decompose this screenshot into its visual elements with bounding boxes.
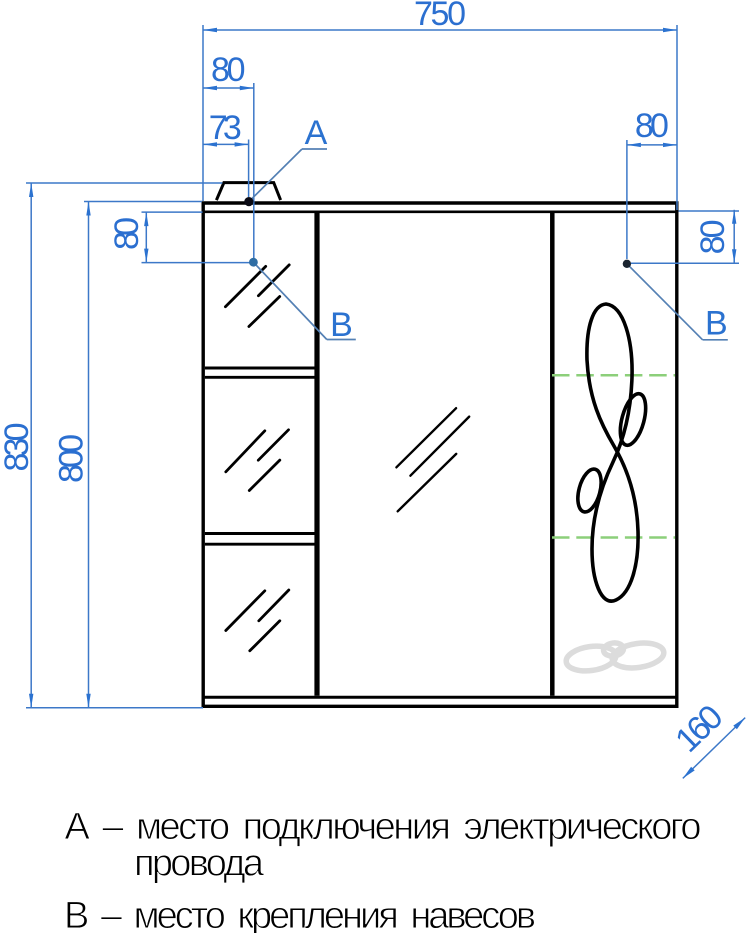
svg-text:830: 830 [0, 423, 36, 472]
svg-text:А: А [305, 114, 328, 152]
svg-text:73: 73 [209, 109, 242, 147]
svg-text:80: 80 [694, 219, 732, 254]
svg-text:В – место крепления навесов: В – место крепления навесов [64, 895, 536, 933]
svg-text:В: В [705, 305, 728, 343]
svg-text:В: В [330, 306, 353, 344]
svg-text:80: 80 [108, 217, 146, 250]
svg-text:750: 750 [414, 0, 466, 33]
svg-text:80: 80 [635, 107, 669, 145]
svg-text:800: 800 [53, 434, 91, 483]
svg-text:80: 80 [211, 51, 246, 89]
svg-text:провода: провода [134, 843, 265, 885]
